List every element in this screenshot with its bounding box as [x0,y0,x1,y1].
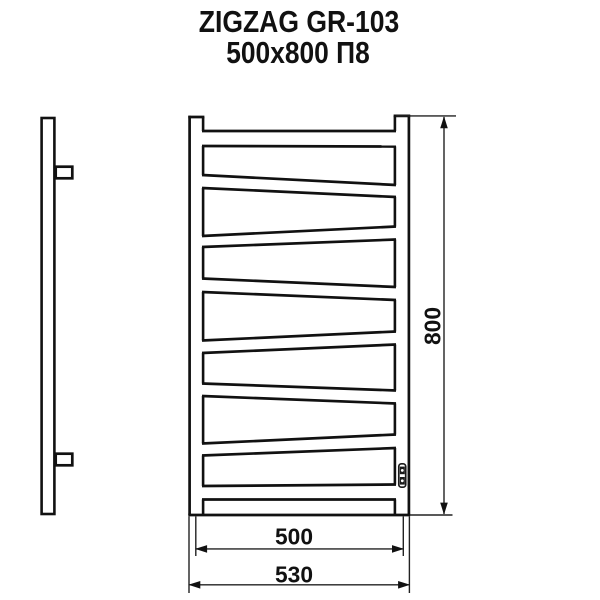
svg-text:ZIGZAG GR-103: ZIGZAG GR-103 [199,5,400,39]
svg-text:500: 500 [275,524,313,550]
svg-text:530: 530 [275,562,313,588]
svg-text:800: 800 [420,307,446,345]
svg-text:500x800 П8: 500x800 П8 [226,36,370,70]
